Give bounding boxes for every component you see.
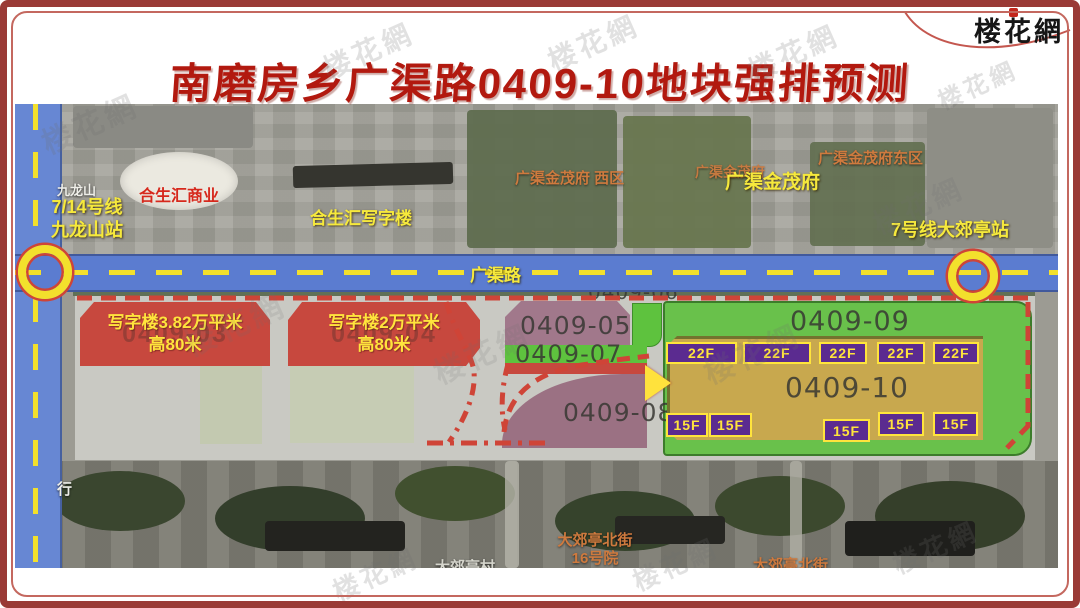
- floor-badge-15f: 15F: [933, 412, 978, 436]
- street-word-label: 行: [57, 478, 72, 499]
- minor-road: [790, 461, 802, 568]
- village-label: 大郊亭村: [435, 556, 495, 568]
- office-a-area: 写字楼3.82万平米: [107, 312, 242, 334]
- floor-badge-15f: 15F: [666, 413, 708, 437]
- plot-label-0409-07: 0409-07: [515, 340, 622, 368]
- station-name: 九龙山站: [51, 220, 123, 240]
- satellite-bottom-band: [15, 461, 1058, 568]
- floor-badge-22f: 22F: [666, 342, 737, 364]
- pale-green-yard: [290, 364, 414, 443]
- guangqu-road-label: 广渠路: [470, 261, 521, 286]
- jinmao-east-label: 广渠金茂府东区: [818, 147, 923, 168]
- page-title: 南磨房乡广渠路0409-10地块强排预测: [0, 50, 1080, 111]
- office-a-height: 高80米: [149, 334, 202, 356]
- building-block: [845, 521, 975, 556]
- tree-cluster: [715, 476, 845, 536]
- jinmao-front-label: 广渠金茂府: [725, 167, 820, 194]
- heshenghui-office-label: 合生汇写字楼: [310, 204, 412, 229]
- dajiaoting-station-label: 7号线大郊亭站: [891, 216, 1009, 242]
- floor-badge-22f: 22F: [877, 342, 925, 364]
- office-block-a: 0409-03 写字楼3.82万平米 高80米: [80, 302, 270, 366]
- road-center-line: [15, 270, 1058, 275]
- station-line-number: 7/14号线: [51, 197, 122, 217]
- north-street-label: 大郊亭北街: [753, 554, 828, 568]
- brand-logo-seal-dot: [1009, 8, 1018, 17]
- office-b-height: 高80米: [358, 334, 411, 356]
- office-tower-building: [293, 162, 454, 188]
- satellite-map: 0409-06 0409-03 写字楼3.82万平米 高80米 0409-04 …: [15, 104, 1058, 568]
- plot-label-0409-08: 0409-08: [563, 398, 674, 427]
- office-block-b: 0409-04 写字楼2万平米 高80米: [288, 302, 480, 366]
- building-block: [73, 106, 253, 148]
- floor-badge-22f: 22F: [933, 342, 979, 364]
- jiulongshan-station-marker: [18, 245, 72, 299]
- office-block-b-label: 写字楼2万平米 高80米: [288, 302, 480, 366]
- tree-cluster: [395, 466, 515, 521]
- street16-line2: 16号院: [572, 550, 619, 567]
- infographic-canvas: 南磨房乡广渠路0409-10地块强排预测 楼花網: [0, 0, 1080, 608]
- floor-badge-15f: 15F: [878, 412, 924, 436]
- jinmao-west-label: 广渠金茂府 西区: [515, 167, 624, 188]
- brand-logo-text: 楼花網: [974, 17, 1064, 47]
- pointer-arrow-icon: [645, 365, 671, 401]
- vertical-road: [15, 104, 62, 568]
- office-b-area: 写字楼2万平米: [328, 312, 439, 334]
- minor-road: [505, 461, 519, 568]
- green-strip-piece: [632, 303, 662, 347]
- road-center-line: [33, 104, 38, 568]
- street16-line1: 大郊亭北街: [557, 532, 632, 549]
- guangqu-road: 广渠路: [15, 254, 1058, 292]
- plot-label-0409-09: 0409-09: [790, 306, 910, 337]
- tree-cluster: [55, 471, 185, 531]
- office-block-a-label: 写字楼3.82万平米 高80米: [80, 302, 270, 366]
- floor-badge-22f: 22F: [743, 342, 811, 364]
- dajiaoting-station-marker: [948, 251, 998, 301]
- pale-green-yard: [200, 364, 262, 444]
- plot-label-0409-05: 0409-05: [520, 311, 631, 340]
- floor-badge-22f: 22F: [819, 342, 867, 364]
- floor-badge-15f: 15F: [823, 419, 870, 442]
- brand-logo: 楼花網: [974, 10, 1064, 49]
- floor-badge-15f: 15F: [709, 413, 752, 437]
- jiulongshan-station-label: 7/14号线 九龙山站: [41, 196, 133, 241]
- heshenghui-mall-label: 合生汇商业: [139, 182, 219, 206]
- plot-label-0409-10: 0409-10: [785, 371, 909, 404]
- building-block: [265, 521, 405, 551]
- street16-label: 大郊亭北街 16号院: [543, 532, 647, 568]
